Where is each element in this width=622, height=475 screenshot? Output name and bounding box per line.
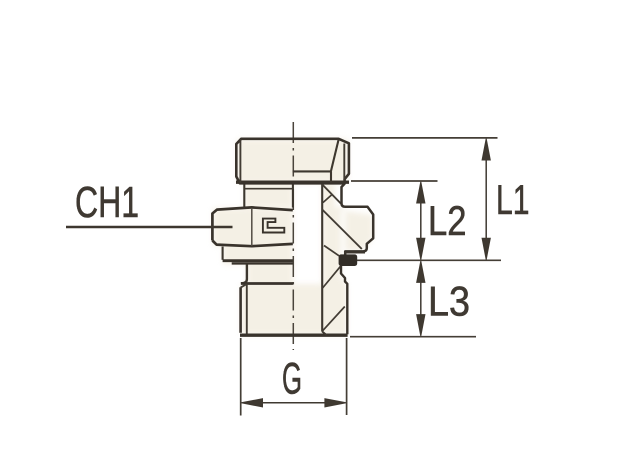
svg-text:L1: L1 — [496, 176, 530, 223]
svg-text:G: G — [282, 354, 302, 403]
svg-text:L3: L3 — [428, 277, 470, 324]
svg-text:CH1: CH1 — [75, 179, 139, 227]
svg-text:L2: L2 — [428, 197, 467, 244]
